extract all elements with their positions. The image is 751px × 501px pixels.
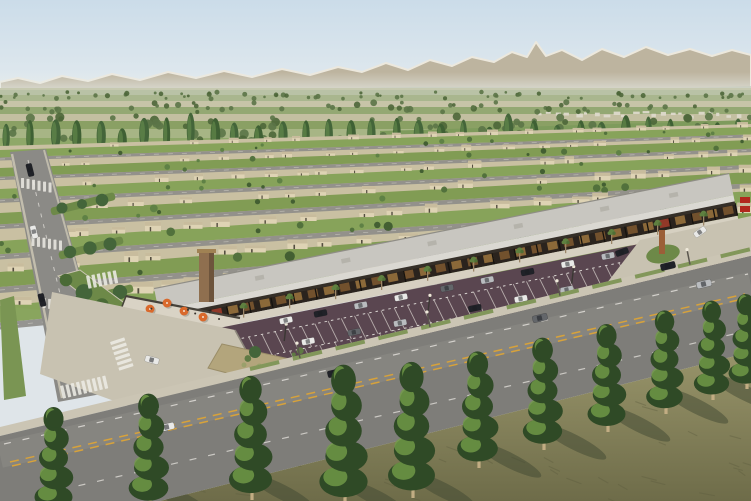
median-tree (77, 199, 87, 209)
distant-tree (207, 92, 212, 97)
house-roof (264, 137, 271, 139)
house-door (235, 175, 236, 178)
house-door (128, 257, 130, 262)
house-roof (692, 138, 700, 140)
car-glass (605, 253, 610, 258)
yard-tree (197, 159, 200, 162)
house-door (84, 163, 85, 165)
entry-sculpture (659, 230, 665, 254)
house-roof (434, 147, 444, 149)
distant-tree (617, 102, 622, 107)
crosswalk-bar (49, 183, 52, 193)
parking-light-head (428, 294, 431, 297)
house-roof (348, 135, 359, 137)
house-roof (326, 152, 335, 154)
distant-building (651, 114, 655, 117)
yard-tree (376, 154, 380, 158)
house-roof (231, 171, 244, 174)
house-door (85, 182, 86, 185)
house-roof (663, 126, 670, 128)
patio-chair (218, 318, 220, 320)
yard-tree (82, 215, 88, 221)
yard-tree (256, 228, 261, 233)
car-glass (358, 303, 363, 308)
palm-frond (566, 241, 569, 244)
house-door (293, 245, 295, 249)
palm-frond (378, 277, 381, 280)
house-roof (76, 228, 89, 231)
house-door (132, 203, 133, 206)
house-door (577, 200, 578, 203)
street-light-head (425, 310, 428, 313)
palm-frond (520, 250, 523, 253)
house-door (137, 288, 139, 293)
distant-tree (493, 121, 501, 129)
distant-tree (471, 105, 475, 109)
house-roof (194, 173, 203, 176)
poplar-highlight (187, 116, 191, 143)
house-roof (698, 152, 708, 154)
distant-tree (440, 109, 445, 114)
house-roof (285, 192, 295, 194)
crosswalk-bar (53, 240, 56, 250)
house-door (427, 167, 428, 170)
distant-tree (133, 113, 138, 118)
desert-shrub (242, 363, 247, 368)
distant-tree (407, 106, 414, 113)
poplar-highlight (3, 126, 7, 147)
palm-frond (474, 259, 477, 262)
house-roof (430, 183, 444, 186)
yard-tree (713, 146, 718, 151)
palm-frond (470, 259, 473, 262)
distant-tree (49, 109, 54, 114)
distant-building (716, 113, 719, 116)
car-glass (518, 296, 523, 301)
house-roof (245, 245, 266, 248)
house-door (224, 251, 226, 255)
house-roof (259, 216, 277, 219)
palm-frond (336, 287, 339, 290)
house-roof (565, 156, 574, 159)
yard-tree (706, 132, 711, 137)
crosswalk-bar (59, 241, 62, 251)
palm-frond (700, 213, 703, 216)
house-roof (428, 132, 437, 134)
house-door (251, 249, 253, 252)
house-roof (81, 161, 89, 163)
distant-tree (252, 96, 257, 101)
crosswalk-bar (21, 178, 24, 188)
distant-tree (721, 96, 724, 99)
palm-frond (332, 287, 335, 290)
yard-tree (527, 153, 530, 156)
house-roof (707, 167, 720, 170)
distant-tree (673, 96, 676, 99)
house-roof (183, 222, 202, 225)
crosswalk-bar (32, 180, 35, 190)
house-roof (282, 152, 292, 155)
palm-frond (704, 213, 707, 216)
distant-tree (187, 94, 190, 97)
umbrella-top (166, 302, 168, 304)
house-door (437, 150, 438, 152)
distant-tree (494, 100, 498, 104)
house-roof (83, 179, 92, 182)
distant-tree (537, 92, 541, 96)
yard-tree (621, 183, 629, 191)
house-door (261, 195, 262, 198)
distant-tree (737, 93, 742, 98)
house-door (329, 154, 330, 156)
yard-tree (384, 222, 393, 231)
house-door (396, 151, 397, 153)
house-roof (740, 185, 751, 188)
house-door (269, 175, 270, 177)
house-door (391, 212, 392, 215)
distant-tree (388, 104, 394, 110)
distant-tree (631, 95, 635, 99)
foreground-tree-top (242, 379, 261, 400)
street-light-head (555, 279, 558, 282)
house-door (19, 301, 21, 305)
house-door (576, 130, 577, 132)
yard-tree (647, 150, 650, 153)
distant-building (737, 114, 742, 118)
palm-frond (424, 268, 427, 271)
distant-building (678, 113, 681, 115)
distant-tree (397, 105, 402, 110)
distant-tree (724, 109, 728, 113)
house-roof (636, 126, 646, 128)
house-roof (540, 158, 554, 161)
distant-tree (194, 104, 199, 109)
house-door (366, 190, 367, 193)
house-roof (458, 180, 473, 183)
distant-tree (219, 107, 224, 112)
foreground-tree-top (47, 410, 64, 428)
distant-tree (359, 95, 362, 98)
distant-tree (25, 107, 30, 112)
foreground-tree-top (600, 327, 617, 345)
house-roof (490, 201, 509, 204)
yard-tree (291, 199, 295, 203)
house-door (662, 174, 663, 177)
distant-tree (284, 93, 288, 97)
yard-tree (579, 162, 583, 166)
house-door (159, 179, 160, 182)
house-roof (525, 129, 533, 131)
distant-tree (684, 114, 693, 123)
house-door (694, 140, 695, 142)
distant-tree (649, 104, 653, 108)
foreground-tree-top (403, 366, 424, 389)
yard-tree (466, 152, 471, 157)
house-roof (287, 239, 307, 243)
car-glass (283, 318, 288, 323)
house-roof (62, 161, 70, 163)
distant-tree (13, 93, 17, 97)
house-roof (359, 210, 374, 213)
yard-tree (255, 199, 260, 204)
yard-tree (561, 149, 567, 155)
yard-tree (350, 228, 355, 233)
car-glass (525, 270, 530, 275)
median-tree (96, 194, 109, 207)
house-door (232, 141, 233, 143)
distant-tree (279, 106, 284, 111)
distant-tree (428, 124, 434, 130)
yard-tree (202, 179, 206, 183)
house-door (434, 187, 435, 190)
house-door (266, 140, 267, 142)
car-glass (351, 330, 356, 335)
distant-tree (159, 92, 164, 97)
yard-tree (420, 169, 424, 173)
house-door (506, 147, 507, 149)
distant-tree (124, 91, 129, 96)
car-glass (398, 295, 403, 300)
yard-tree (297, 222, 304, 229)
distant-tree (576, 109, 581, 114)
house-roof (387, 208, 403, 211)
house-door (354, 171, 355, 174)
red-signboard (740, 206, 750, 212)
distant-tree (338, 107, 342, 111)
distant-tree (497, 108, 502, 113)
house-roof (131, 282, 154, 287)
distant-tree (58, 116, 63, 121)
house-door (496, 205, 497, 208)
palm-frond (658, 222, 661, 225)
distant-tree (307, 96, 310, 99)
house-roof (145, 253, 160, 256)
distant-tree (642, 93, 645, 96)
distant-tree (704, 93, 709, 98)
house-roof (594, 141, 606, 143)
yard-tree (374, 222, 380, 228)
house-door (301, 173, 302, 175)
distant-tree (275, 94, 278, 97)
palm-frond (382, 277, 385, 280)
yard-tree (137, 270, 142, 275)
house-door (197, 177, 198, 180)
house-door (288, 195, 289, 198)
house-roof (180, 156, 189, 158)
distant-tree (400, 101, 404, 105)
distant-tree (693, 104, 697, 108)
house-door (743, 169, 744, 173)
house-roof (572, 197, 589, 200)
house-door (540, 181, 541, 184)
crosswalk-bar (37, 237, 40, 247)
median-tree (56, 202, 67, 213)
distant-tree (206, 106, 210, 110)
distant-building (671, 113, 676, 115)
house-door (543, 146, 544, 148)
house-door (545, 162, 546, 165)
yard-tree (5, 248, 11, 254)
distant-tree (546, 106, 552, 112)
distant-tree (487, 95, 490, 98)
yard-tree (118, 151, 122, 155)
distant-tree (434, 91, 437, 94)
yard-tree (250, 156, 256, 162)
house-door (747, 138, 748, 141)
yard-tree (166, 227, 175, 236)
house-roof (534, 198, 552, 201)
house-door (264, 220, 265, 223)
house-roof (110, 142, 119, 144)
house-door (79, 232, 80, 236)
distant-tree (341, 97, 345, 101)
house-roof (362, 186, 375, 189)
distant-tree (165, 97, 168, 100)
house-roof (124, 252, 138, 256)
yard-tree (261, 143, 264, 146)
distant-tree (710, 108, 715, 113)
house-roof (487, 130, 498, 132)
yard-tree (199, 186, 204, 191)
distant-tree (93, 93, 97, 97)
distant-tree (9, 129, 16, 136)
house-door (599, 177, 600, 181)
distant-building (576, 114, 583, 118)
distant-tree (4, 100, 8, 104)
house-door (322, 243, 324, 247)
house-roof (595, 173, 611, 176)
aerial-development-render (0, 0, 751, 501)
distant-tree (479, 103, 484, 108)
house-roof (258, 191, 269, 194)
distant-tree (534, 109, 540, 115)
distant-tree (156, 122, 164, 130)
distant-tree (55, 107, 62, 114)
house-door (665, 128, 666, 130)
foreground-tree-top (334, 369, 355, 392)
house-door (319, 193, 320, 196)
yard-tree (285, 251, 295, 261)
foreground-tree-top (658, 313, 674, 330)
yard-tree (255, 147, 258, 150)
yard-tree (220, 148, 224, 152)
distant-tree (395, 95, 400, 100)
distant-tree (195, 110, 199, 114)
distant-building (604, 115, 611, 118)
house-door (567, 160, 568, 163)
umbrella-top (202, 316, 204, 318)
house-door (527, 132, 528, 134)
house-roof (316, 190, 327, 193)
distant-building (643, 111, 650, 113)
house-roof (218, 246, 237, 250)
yard-tree (92, 184, 96, 188)
distant-building (633, 112, 640, 114)
poplar-highlight (52, 122, 57, 145)
yard-tree (540, 169, 545, 174)
yard-tree (164, 164, 170, 170)
poplar-highlight (73, 123, 78, 147)
yard-tree (482, 173, 487, 178)
house-roof (180, 197, 192, 200)
palm-frond (290, 296, 293, 299)
house-door (364, 214, 365, 217)
house-roof (219, 154, 229, 156)
palm-frond (654, 222, 657, 225)
distant-tree (242, 92, 247, 97)
median-tree (104, 238, 117, 251)
house-roof (424, 164, 434, 166)
house-door (673, 140, 674, 143)
house-roof (631, 170, 646, 174)
house-roof (393, 149, 404, 151)
house-door (730, 153, 731, 156)
crosswalk-bar (48, 239, 51, 249)
distant-tree (433, 123, 438, 128)
distant-tree (65, 90, 69, 94)
car-glass (397, 320, 402, 325)
distant-tree (214, 90, 219, 95)
distant-tree (43, 107, 47, 111)
distant-tree (370, 99, 377, 106)
distant-tree (562, 119, 568, 125)
house-roof (292, 136, 300, 138)
house-door (404, 169, 405, 171)
house-door (351, 137, 352, 139)
house-roof (211, 218, 230, 222)
car-glass (305, 339, 310, 344)
house-door (744, 189, 745, 192)
distant-tree (479, 90, 483, 94)
house-door (458, 134, 459, 136)
distant-building (564, 113, 569, 116)
foreground-tree-top (470, 355, 488, 374)
house-door (352, 153, 353, 155)
yard-tree (379, 195, 385, 201)
house-door (183, 200, 184, 203)
house-door (462, 185, 463, 188)
house-door (268, 156, 269, 158)
yard-tree (593, 184, 600, 191)
house-door (701, 155, 702, 158)
distant-tree (54, 96, 59, 101)
house-door (570, 145, 571, 147)
distant-tree (400, 95, 403, 98)
median-tree (83, 241, 96, 254)
distant-tree (209, 96, 214, 101)
patio-chair (194, 312, 196, 314)
house-door (285, 155, 286, 158)
distant-tree (354, 102, 360, 108)
poplar-highlight (97, 123, 102, 146)
distant-tree (154, 92, 157, 95)
house-roof (13, 297, 32, 300)
foreground-tree-top (141, 397, 159, 416)
car-glass (484, 278, 489, 283)
house-door (472, 165, 473, 168)
palm-frond (286, 296, 289, 299)
house-roof (727, 150, 737, 153)
distant-tree (60, 135, 67, 142)
distant-tree (42, 94, 45, 97)
distant-tree (563, 99, 569, 105)
yard-tree (740, 140, 744, 144)
house-roof (265, 153, 274, 155)
house-door (150, 257, 152, 260)
palm-frond (516, 250, 519, 253)
distant-tree (453, 113, 461, 121)
yard-tree (439, 139, 444, 144)
